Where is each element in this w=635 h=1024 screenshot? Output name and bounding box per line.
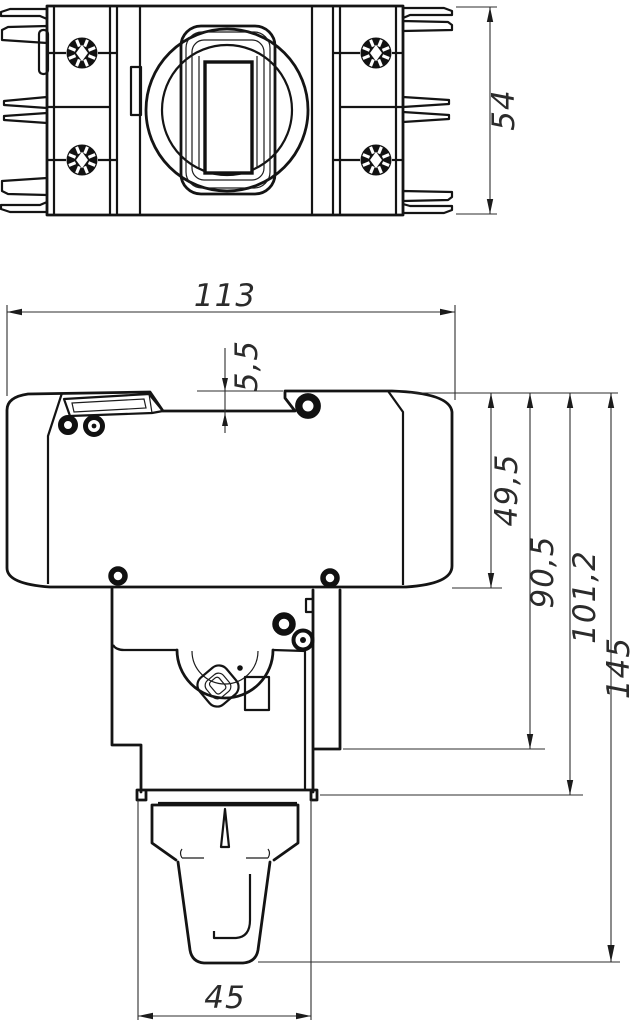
dim-90-5-label: 90,5 — [525, 535, 561, 608]
screw-icon — [67, 145, 98, 176]
technical-drawing: 54 113 5,5 49,5 90,5 101,2 145 — [0, 0, 635, 1024]
pocket-arc-outer — [177, 650, 273, 698]
pointer-mark — [221, 809, 229, 847]
base-plate — [137, 790, 317, 800]
dim-49-5-label: 49,5 — [489, 453, 525, 526]
dimension-45: 45 — [138, 800, 311, 1020]
plug-inner-line — [214, 874, 250, 938]
knob-grip-slot — [205, 62, 252, 173]
bottom-edge-hole-right — [323, 571, 337, 585]
column-hole-ring — [276, 616, 293, 633]
bottom-edge-hole-left — [111, 569, 125, 583]
dim-113-label: 113 — [194, 278, 256, 314]
dimension-54: 54 — [456, 7, 522, 214]
screw-icon — [361, 38, 392, 69]
plug-outline — [178, 862, 270, 963]
dim-5-5-label: 5,5 — [229, 340, 265, 392]
hole-ring — [61, 418, 75, 432]
dim-101-2-label: 101,2 — [567, 550, 603, 644]
dimension-5-5: 5,5 — [197, 340, 283, 433]
front-view — [7, 391, 452, 963]
mount-tabs-right — [403, 8, 452, 213]
dimension-145: 145 — [258, 393, 635, 962]
dim-145-label: 145 — [601, 637, 635, 699]
arc-pin — [237, 665, 243, 671]
front-right-bevel — [388, 391, 403, 585]
top-view — [1, 6, 452, 215]
rotary-knob — [146, 26, 308, 194]
label-plate — [64, 394, 163, 416]
base-connector — [137, 790, 317, 963]
drawing-sheet: 54 113 5,5 49,5 90,5 101,2 145 — [0, 0, 635, 1024]
dim-45-label: 45 — [204, 980, 245, 1016]
screw-icon — [361, 145, 392, 176]
middle-column — [112, 588, 340, 792]
screw-icon — [67, 38, 98, 69]
dim-54-label: 54 — [486, 89, 522, 130]
keyhole-block — [193, 661, 242, 710]
top-notch-hole — [299, 397, 317, 415]
